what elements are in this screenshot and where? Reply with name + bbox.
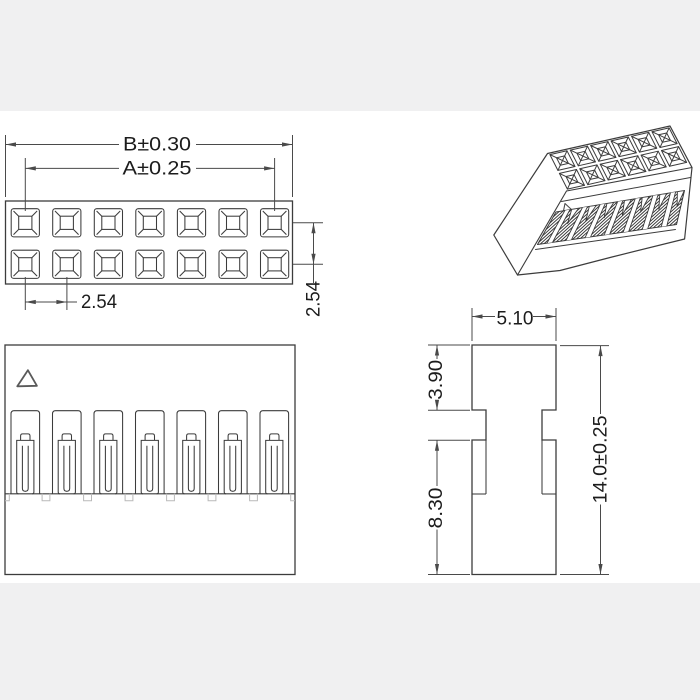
svg-text:A±0.25: A±0.25 (123, 158, 192, 179)
svg-text:5.10: 5.10 (497, 309, 534, 330)
svg-text:14.0±0.25: 14.0±0.25 (591, 415, 612, 503)
svg-text:3.90: 3.90 (426, 360, 447, 400)
svg-text:2.54: 2.54 (304, 281, 325, 317)
svg-text:2.54: 2.54 (81, 292, 117, 313)
svg-text:B±0.30: B±0.30 (123, 135, 191, 156)
svg-text:8.30: 8.30 (426, 488, 447, 529)
